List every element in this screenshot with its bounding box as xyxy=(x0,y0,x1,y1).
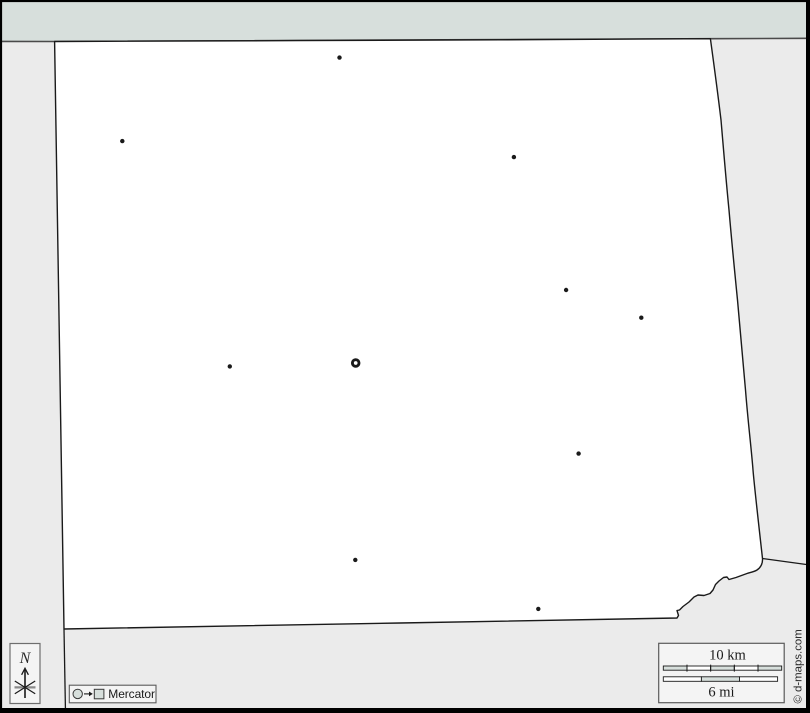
svg-text:Mercator: Mercator xyxy=(108,687,155,701)
svg-text:6 mi: 6 mi xyxy=(708,685,734,701)
svg-text:10 km: 10 km xyxy=(709,648,746,664)
svg-text:© d-maps.com: © d-maps.com xyxy=(792,629,804,703)
svg-text:N: N xyxy=(19,650,32,667)
